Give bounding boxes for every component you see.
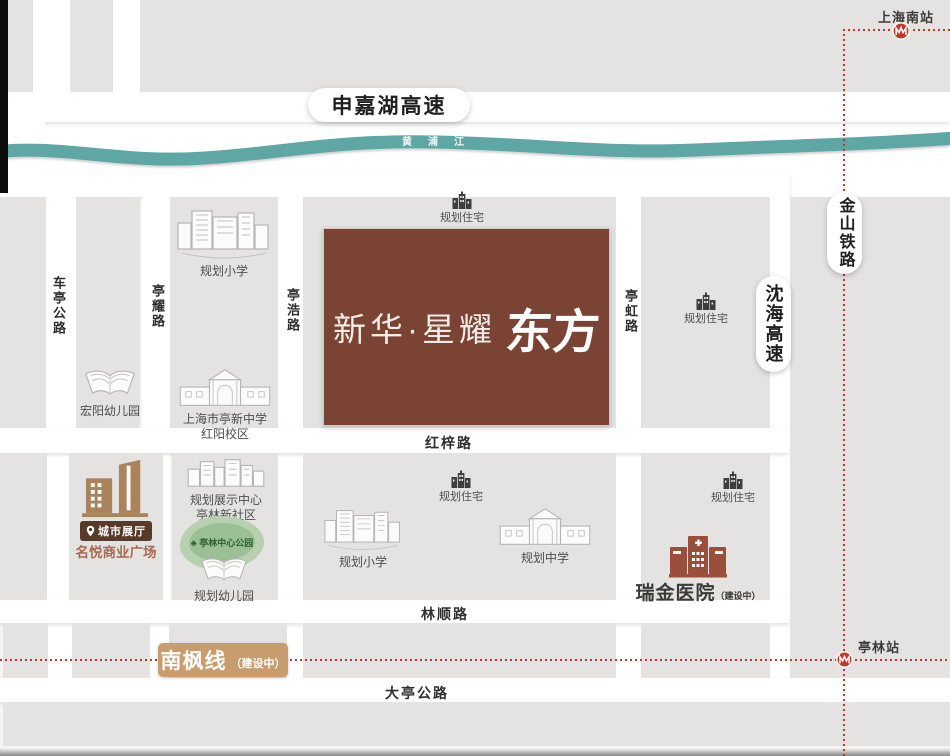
ruijin-name: 瑞金医院 xyxy=(635,583,715,604)
city-block xyxy=(140,0,950,92)
map-canvas: 黄浦江 上海南站 亭林站 申嘉湖高速 金山铁路 沈海高速 xyxy=(0,0,950,756)
shenjiahu-expressway-label: 申嘉湖高速 xyxy=(308,88,470,122)
park-name: 亭林中心公园 xyxy=(199,538,253,548)
road-label-tingyao: 亭耀路 xyxy=(148,284,167,329)
tingxin-line2: 红阳校区 xyxy=(201,427,249,441)
poi-planned-housing: 规划住宅 xyxy=(684,292,728,327)
exhibition-line1: 规划展示中心 xyxy=(190,493,262,507)
poi-planned-housing: 规划住宅 xyxy=(711,471,755,506)
tingxin-line1: 上海市亭新中学 xyxy=(183,412,267,426)
mingyue-plaza-label: 名悦商业广场 xyxy=(76,545,157,562)
project-name-suffix: 东方 xyxy=(504,293,603,362)
poi-hongyang-kindergarten: 宏阳幼儿园 xyxy=(80,368,140,419)
poi-planned-primary-school: 规划小学 xyxy=(176,203,272,279)
gate-school-illustration xyxy=(170,367,280,409)
city-block xyxy=(0,453,47,600)
city-block xyxy=(0,197,46,428)
jinshan-railway-line xyxy=(843,29,845,756)
book-icon xyxy=(81,368,139,401)
building-icon xyxy=(723,471,743,489)
road-stub-left xyxy=(33,0,70,92)
city-block xyxy=(3,702,950,746)
exhibition-illustration xyxy=(184,456,268,490)
poi-planned-middle-school: 规划中学 xyxy=(492,506,598,566)
road-label-linshun: 林顺路 xyxy=(421,604,469,624)
ruijin-status: （建设中） xyxy=(716,591,761,601)
road-label-tinghong: 亭虹路 xyxy=(621,289,640,334)
tree-icon: ♣ xyxy=(191,538,197,548)
pin-icon xyxy=(86,525,95,537)
city-hall-badge: 城市展厅 xyxy=(80,521,152,541)
poi-planned-kindergarten: 规划幼儿园 xyxy=(194,556,254,604)
city-block xyxy=(72,623,150,678)
jinshan-railway-label: 金山铁路 xyxy=(827,192,862,274)
river xyxy=(0,118,950,180)
poi-planned-housing: 规划住宅 xyxy=(440,191,484,226)
school-illustration xyxy=(176,203,272,261)
left-dark-strip xyxy=(0,0,8,193)
city-block xyxy=(70,0,113,92)
road-hongzi xyxy=(0,428,790,453)
road-label-cheting: 车亭公路 xyxy=(49,276,68,336)
city-block xyxy=(3,623,48,678)
station-label-tinglin: 亭林站 xyxy=(858,637,900,656)
poi-mingyue-plaza: 城市展厅 名悦商业广场 xyxy=(70,457,162,562)
building-icon xyxy=(452,191,472,209)
shenhai-text: 沈海高速 xyxy=(761,284,787,364)
river-name-label: 黄浦江 xyxy=(402,133,480,148)
poi-exhibition-center: 规划展示中心 亭林新社区 xyxy=(183,456,269,523)
building-icon xyxy=(451,470,471,488)
road-label-hongzi: 红梓路 xyxy=(425,433,473,453)
project-title-box: 新华·星耀 东方 xyxy=(323,228,610,426)
poi-ruijin-hospital: 瑞金医院（建设中） xyxy=(648,534,748,606)
road-label-tinghao: 亭浩路 xyxy=(283,288,302,333)
poi-tingxin-middle-school: 上海市亭新中学 红阳校区 xyxy=(170,367,280,442)
nanfeng-metro-line xyxy=(0,659,950,661)
road-dating xyxy=(0,678,950,702)
city-block xyxy=(790,197,950,678)
shenjiahu-text: 申嘉湖高速 xyxy=(332,90,447,120)
nanfeng-name: 南枫线 xyxy=(161,645,227,675)
road-label-dating: 大亭公路 xyxy=(385,683,449,703)
hospital-icon xyxy=(668,534,728,578)
jinshan-text: 金山铁路 xyxy=(833,197,857,269)
gate-school-illustration xyxy=(492,506,598,548)
city-hall-building-icon xyxy=(80,457,152,519)
metro-icon xyxy=(836,651,853,668)
city-block xyxy=(641,623,770,678)
metro-icon xyxy=(892,22,910,40)
poi-planned-housing: 规划住宅 xyxy=(439,470,483,505)
bottom-edge-shadow xyxy=(0,748,950,756)
book-icon xyxy=(197,556,251,586)
school-illustration xyxy=(323,504,403,552)
building-icon xyxy=(696,292,716,310)
city-block xyxy=(8,0,33,92)
poi-planned-primary-school: 规划小学 xyxy=(323,504,403,570)
nanfeng-status: （建设中） xyxy=(231,655,286,671)
project-name-prefix: 新华·星耀 xyxy=(333,303,496,351)
city-block xyxy=(303,623,616,678)
shenhai-expressway-label: 沈海高速 xyxy=(756,276,791,372)
road-stub-left2 xyxy=(113,0,140,92)
nanfeng-line-label: 南枫线 （建设中） xyxy=(158,643,288,677)
